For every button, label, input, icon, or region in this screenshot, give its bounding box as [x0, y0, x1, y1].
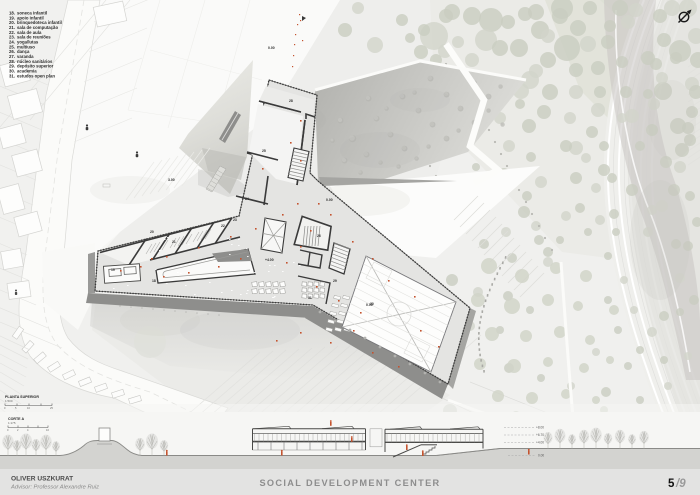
svg-text:+4.00: +4.00 [536, 441, 544, 445]
svg-text:19: 19 [111, 268, 115, 272]
svg-text:18: 18 [152, 279, 156, 283]
svg-text:22: 22 [221, 224, 225, 228]
svg-text:31: 31 [308, 296, 312, 300]
svg-text:estudos open plan: estudos open plan [17, 73, 55, 78]
svg-text:+8.00: +8.00 [536, 426, 544, 430]
svg-text:1:500: 1:500 [5, 399, 13, 403]
svg-text:21: 21 [172, 240, 176, 244]
svg-text:0.00: 0.00 [268, 46, 275, 50]
svg-text:5: 5 [668, 478, 675, 490]
svg-text:+4.00: +4.00 [265, 258, 274, 262]
svg-text:/9: /9 [675, 478, 686, 490]
svg-text:3.00: 3.00 [168, 178, 175, 182]
svg-text:29: 29 [333, 279, 337, 283]
svg-text:OLIVER USZKURAT: OLIVER USZKURAT [11, 476, 73, 483]
svg-text:Advisor: Professor Alexandre R: Advisor: Professor Alexandre Ruiz [10, 485, 99, 491]
svg-text:25: 25 [262, 149, 266, 153]
svg-text:26: 26 [317, 234, 321, 238]
svg-text:+6.70: +6.70 [536, 433, 544, 437]
svg-text:1:175: 1:175 [8, 421, 16, 425]
svg-text:24: 24 [245, 197, 249, 201]
svg-text:31.: 31. [9, 73, 15, 78]
svg-text:20: 20 [150, 230, 154, 234]
svg-text:0.00: 0.00 [326, 198, 333, 202]
svg-text:0.00: 0.00 [538, 454, 544, 458]
svg-text:SOCIAL DEVELOPMENT CENTER: SOCIAL DEVELOPMENT CENTER [259, 478, 440, 488]
svg-text:28: 28 [289, 99, 293, 103]
svg-text:23: 23 [233, 218, 237, 222]
svg-text:0.00: 0.00 [366, 303, 373, 307]
